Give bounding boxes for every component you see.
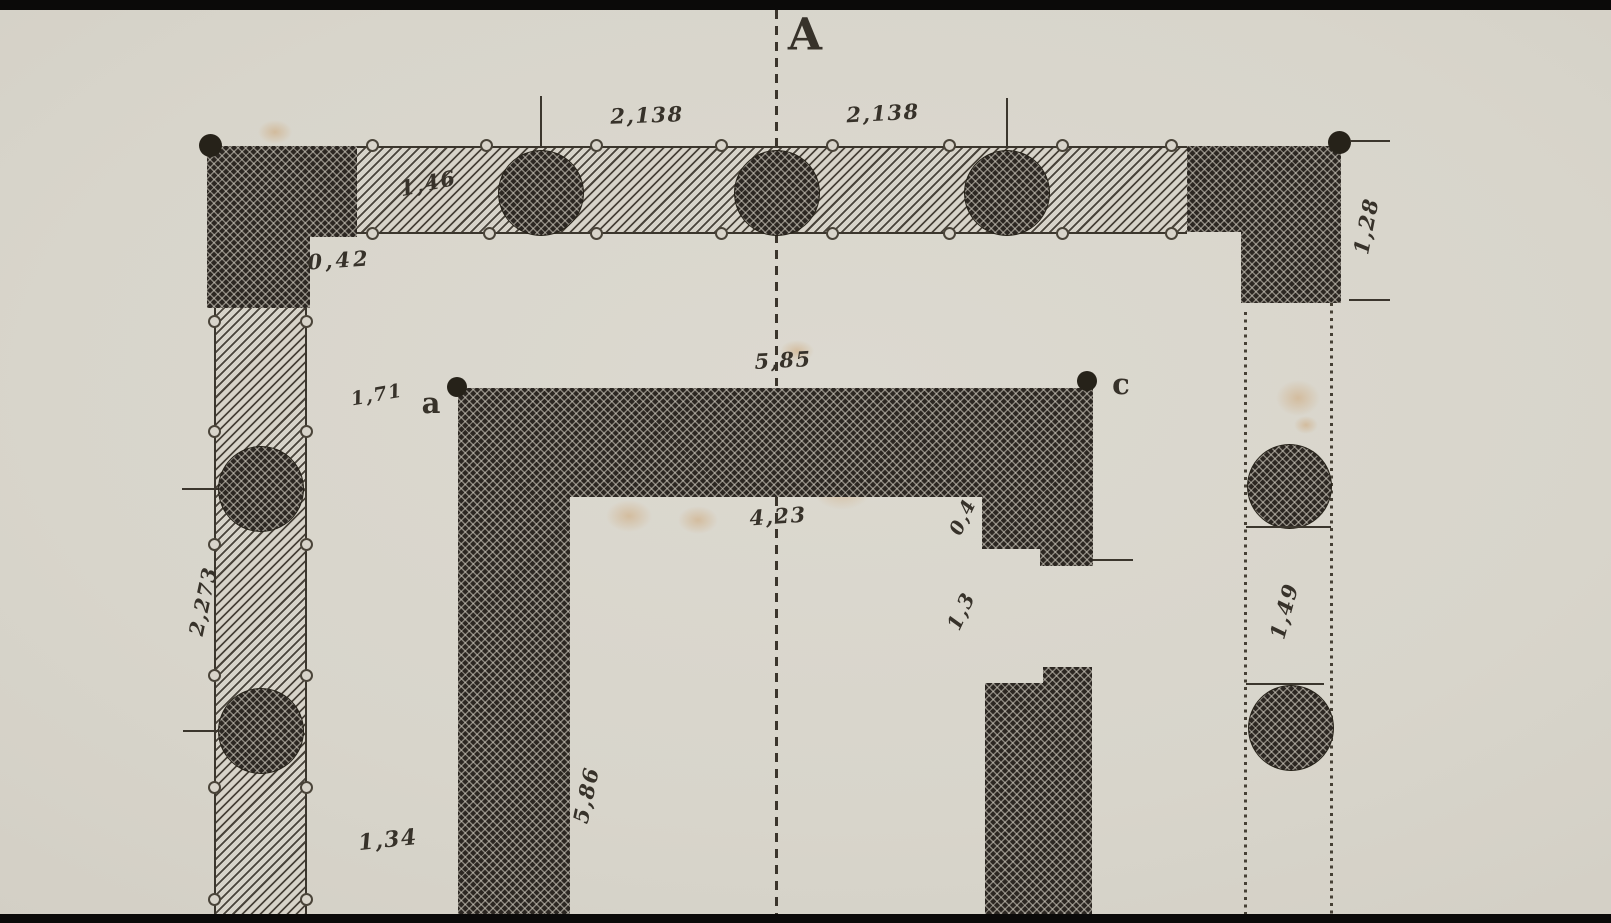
scan-edge-bottom <box>0 914 1611 923</box>
right-column-2 <box>1249 686 1333 770</box>
survey-dot-top-left <box>199 134 222 157</box>
survey-dot-top-right <box>1328 131 1351 154</box>
survey-dot-c <box>1077 371 1097 391</box>
dim-pier-side: 1,28 <box>1348 196 1383 257</box>
section-axis-lower <box>775 497 778 914</box>
top-column-1 <box>499 151 583 235</box>
point-label-a: a <box>422 386 441 420</box>
pier-top-right <box>1187 146 1341 303</box>
survey-dot-a <box>447 377 467 397</box>
dim-cella-inner-width: 4,23 <box>749 502 808 531</box>
dim-right-bay: 1,49 <box>1265 580 1304 642</box>
dim-antae-offset: 1,71 <box>349 380 404 411</box>
dim-top-bay-right: 2,138 <box>846 99 920 128</box>
top-column-2 <box>735 151 819 235</box>
pier-top-left <box>207 146 357 308</box>
cella-wall-door-south <box>985 667 1092 914</box>
right-column-1 <box>1248 445 1331 528</box>
section-letter: A <box>788 10 822 61</box>
top-column-3 <box>965 151 1049 235</box>
left-column-2 <box>219 689 303 773</box>
engraved-floor-plan: A 2,138 2,138 1,46 0,42 5,85 1,71 a c 4,… <box>0 0 1611 923</box>
dim-door-opening: 1,3 <box>942 588 980 634</box>
dim-cella-side-length: 5,86 <box>568 764 604 825</box>
left-wall <box>214 308 307 914</box>
dim-top-bay-left: 2,138 <box>610 101 684 129</box>
dim-left-clearance: 1,34 <box>357 824 419 856</box>
right-colonnade-line-inner <box>1244 312 1247 914</box>
scan-edge-top <box>0 0 1611 10</box>
section-axis-upper <box>775 10 778 146</box>
dim-pier-offset: 0,42 <box>307 245 372 274</box>
left-column-1 <box>219 447 303 531</box>
dim-door-jamb: 0,4 <box>945 495 981 538</box>
dim-cella-front-width: 5,85 <box>754 346 812 374</box>
point-label-c: c <box>1112 367 1130 401</box>
right-colonnade-line-outer <box>1330 303 1333 914</box>
